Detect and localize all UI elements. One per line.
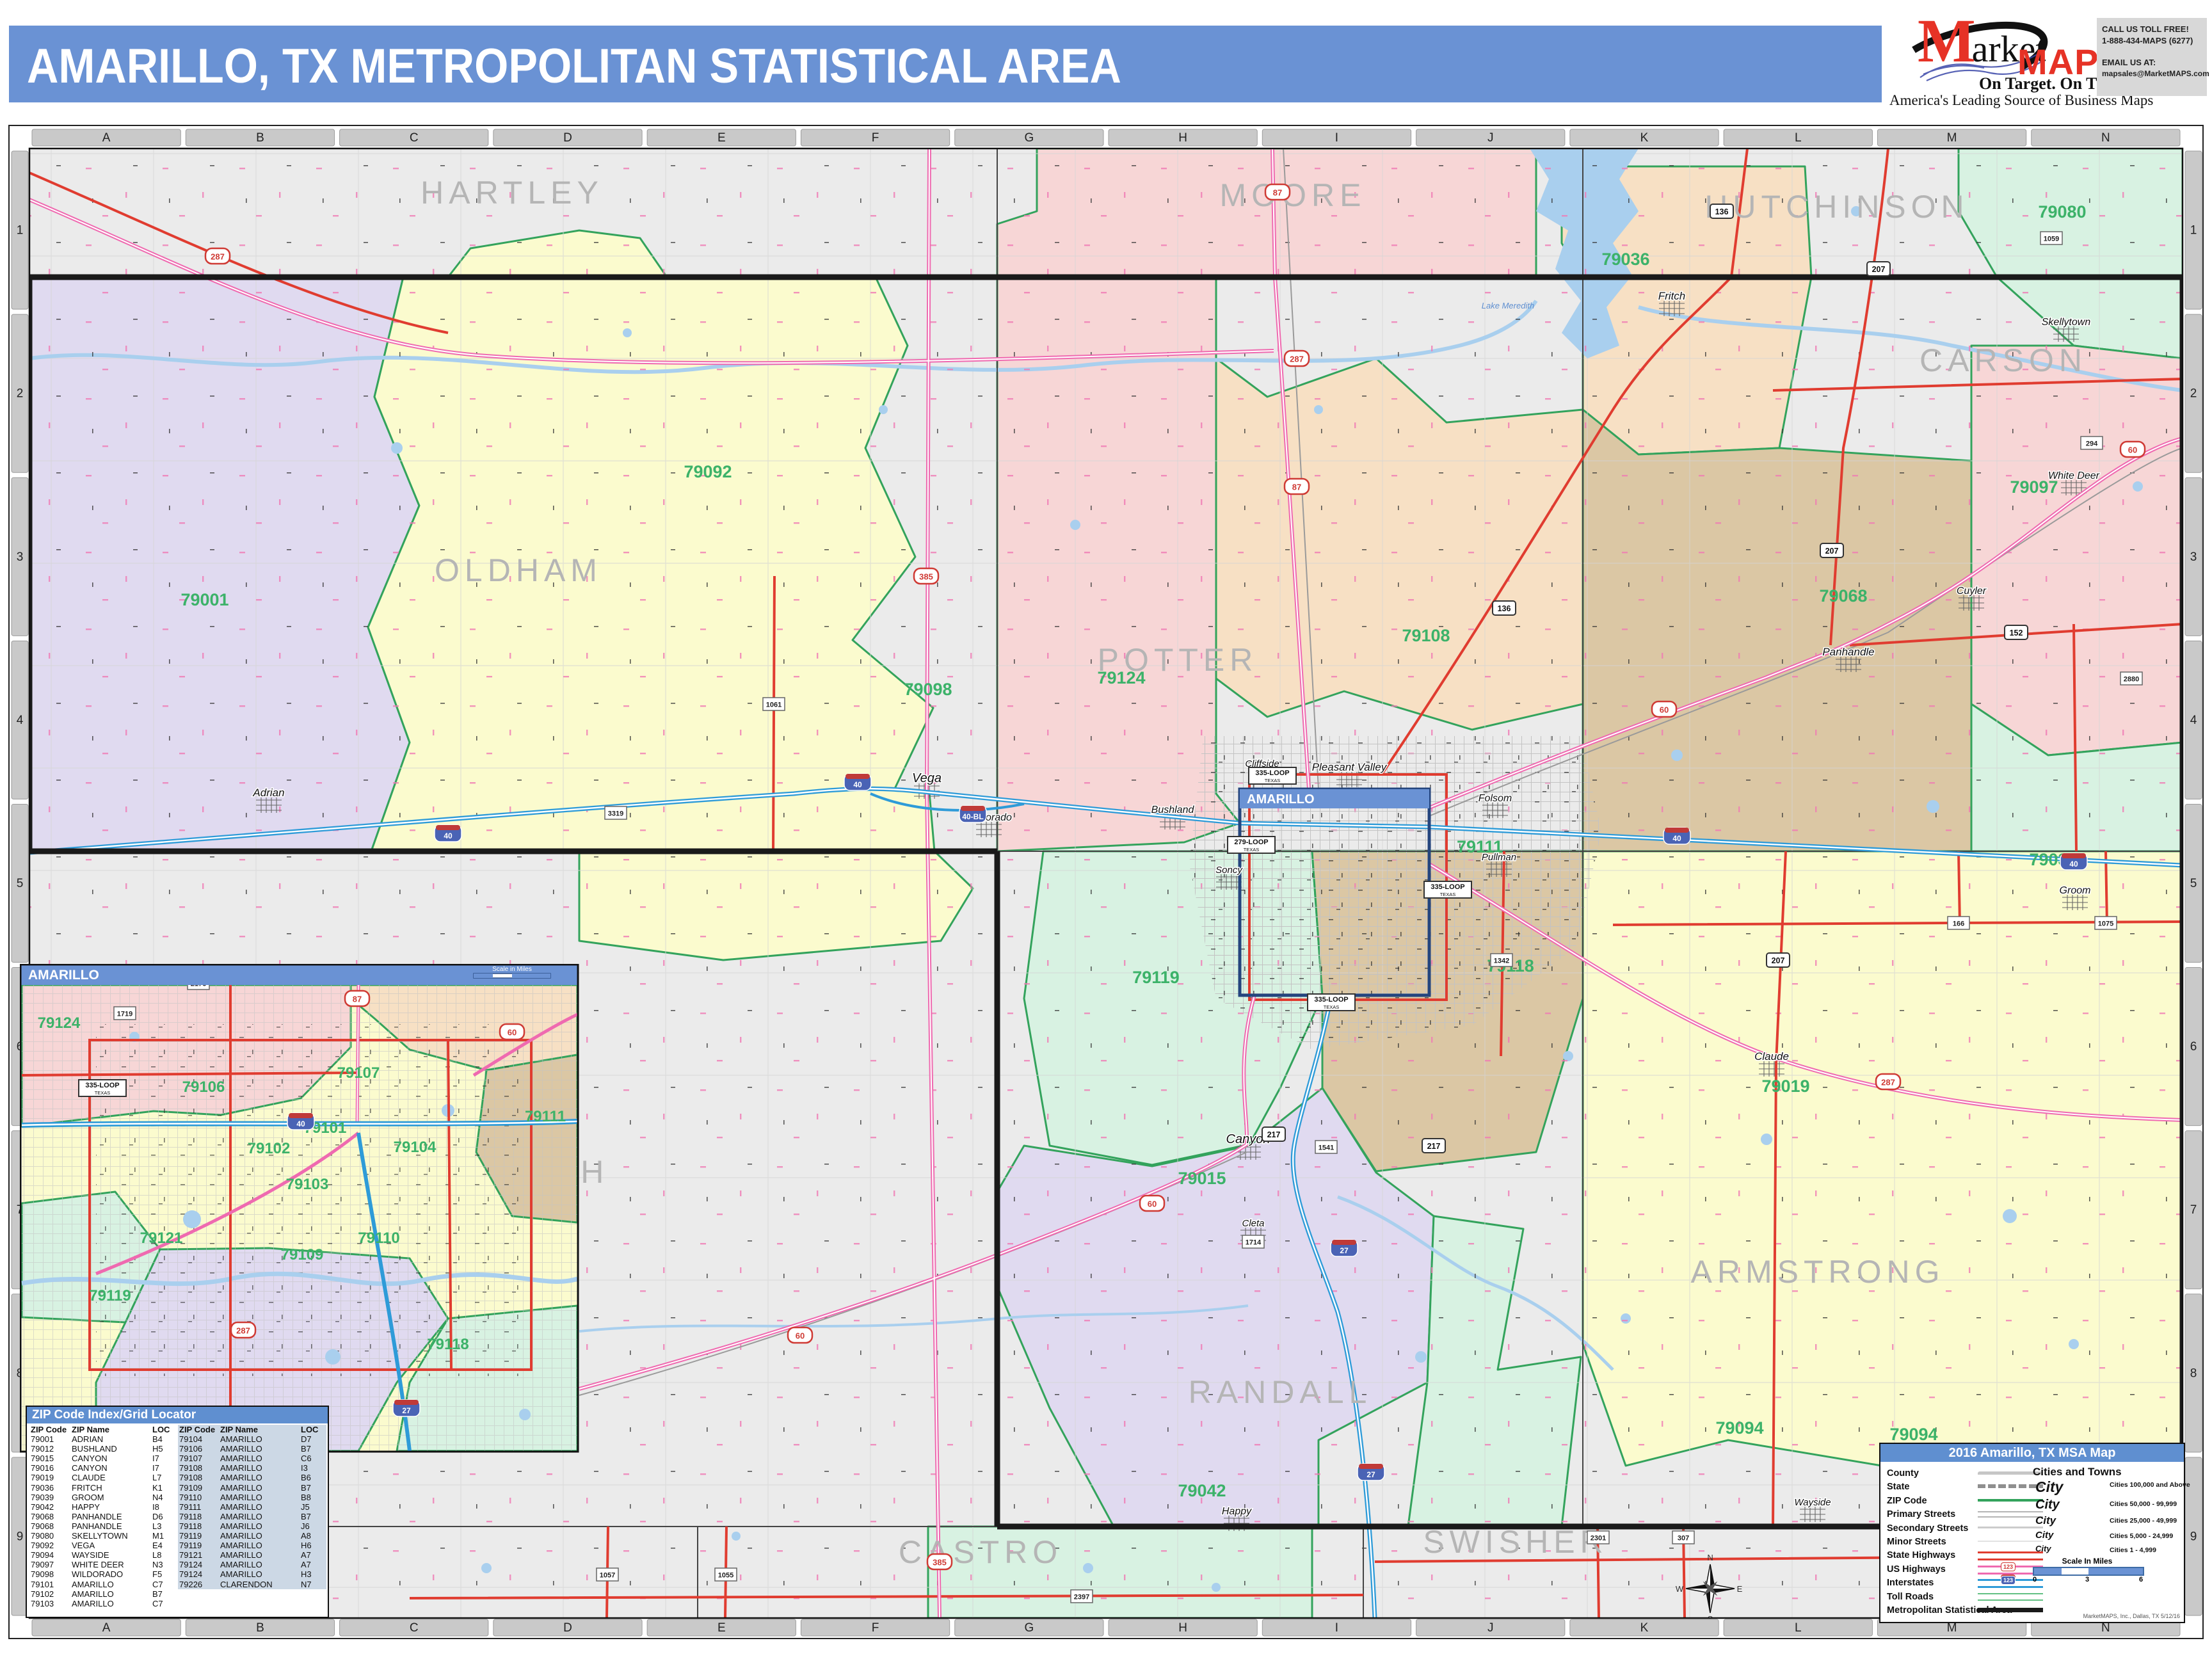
county-label: OLDHAM	[435, 552, 602, 588]
county-label: MOORE	[1220, 177, 1366, 213]
zip-table-row: 79103AMARILLOC7	[29, 1599, 178, 1608]
zip-code-label: 79001	[180, 590, 228, 609]
grid-column-letter: N	[2101, 1621, 2110, 1635]
grid-column-letter: N	[2101, 131, 2110, 145]
svg-text:1541: 1541	[1318, 1144, 1334, 1152]
county-label: CARSON	[1919, 342, 2087, 378]
svg-text:217: 217	[1427, 1142, 1441, 1151]
inset-zip-label: 79103	[286, 1176, 329, 1193]
zip-table-cell: B7	[301, 1444, 324, 1454]
compass-w: W	[1676, 1584, 1684, 1594]
zip-table-cell: AMARILLO	[220, 1493, 301, 1502]
zip-table-cell: 79080	[29, 1531, 72, 1541]
zip-table-cell: ZIP Name	[72, 1425, 152, 1434]
zip-table-cell: CANYON	[72, 1454, 152, 1463]
zip-table-cell: J6	[301, 1521, 324, 1531]
inset-zip-label: 79110	[358, 1230, 399, 1247]
svg-text:TEXAS: TEXAS	[95, 1090, 111, 1096]
legend-item-label: Toll Roads	[1887, 1592, 1934, 1602]
fm-highway-shield: 1061	[763, 698, 785, 710]
hwy-highway-shield: 152	[2005, 625, 2028, 639]
legend-item-ushwy: US Highways123	[1880, 1563, 2028, 1576]
legend-credit: MarketMAPS, Inc., Dallas, TX 5/12/16	[2083, 1613, 2180, 1619]
svg-text:287: 287	[211, 252, 225, 262]
zip-table-cell: WILDORADO	[72, 1569, 152, 1579]
grid-column-letter: B	[256, 1621, 264, 1635]
zip-table-cell: C7	[152, 1580, 175, 1589]
zip-table-cell: L3	[152, 1521, 175, 1531]
hwy-highway-shield: 207	[1867, 262, 1890, 276]
city-class-description: Cities 25,000 - 49,999	[2110, 1517, 2177, 1525]
legend-item-label: US Highways	[1887, 1564, 1946, 1575]
legend: 2016 Amarillo, TX MSA Map CountyStateZIP…	[1879, 1443, 2185, 1623]
zip-table-cell: N7	[301, 1580, 324, 1589]
inset-zip-label: 79121	[140, 1230, 183, 1247]
town-grid	[1235, 1144, 1261, 1160]
zip-table-cell: AMARILLO	[220, 1560, 301, 1569]
town-grid	[1800, 1507, 1825, 1522]
zip-table-cell: 79124	[178, 1569, 220, 1579]
zip-table-row: 79097WHITE DEERN3	[29, 1560, 178, 1569]
county-label: RANDALL	[1189, 1374, 1372, 1410]
town-grid	[1836, 657, 1861, 672]
legend-swatch-toll	[1978, 1593, 2043, 1601]
grid-row-number: 1	[2190, 224, 2197, 237]
lake-label: Lake Meredith	[1482, 301, 1534, 310]
zip-table-cell: LOC	[301, 1425, 324, 1434]
svg-text:335-LOOP: 335-LOOP	[1255, 769, 1289, 777]
i-highway-shield: 40	[2060, 853, 2087, 870]
zip-table-cell: B4	[152, 1434, 175, 1444]
zip-table-row: 79121AMARILLOA7	[178, 1550, 326, 1560]
zip-table-row: 79226CLARENDONN7	[178, 1580, 326, 1589]
zip-table-cell: CLARENDON	[220, 1580, 301, 1589]
zip-table-row: 79039GROOMN4	[29, 1493, 178, 1502]
zip-table-row: 79016CANYONI7	[29, 1463, 178, 1473]
grid-row-number: 9	[2190, 1530, 2197, 1543]
zip-table-cell: AMARILLO	[220, 1512, 301, 1521]
legend-item-msa: Metropolitan Statistical Area	[1880, 1604, 2028, 1617]
interstate-shield-sample: 123	[2001, 1576, 2016, 1585]
zip-table-right-group: ZIP CodeZIP NameLOC79104AMARILLOD779106A…	[178, 1425, 326, 1589]
legend-item-label: State Highways	[1887, 1550, 1955, 1560]
map-poster-page: AMARILLO HARTLEYMOOREHUTCHINSONOLDHAMPOT…	[0, 0, 2212, 1659]
inset-zip-label: 79106	[182, 1078, 225, 1096]
grid-column-letter: L	[1795, 1621, 1802, 1635]
grid-column-letter: F	[872, 131, 879, 145]
grid-row-number: 9	[17, 1530, 24, 1543]
legend-item-label: Interstates	[1887, 1578, 1934, 1588]
grid-row-number: 6	[2190, 1040, 2197, 1054]
legend-item-toll: Toll Roads	[1880, 1591, 2028, 1603]
grid-row-number: 4	[2190, 714, 2197, 727]
zip-table-cell: 79092	[29, 1541, 72, 1550]
town-grid	[2062, 895, 2088, 910]
legend-swatch-state	[1978, 1484, 2043, 1488]
zip-table-cell: B7	[301, 1512, 324, 1521]
county-label: ARMSTRONG	[1691, 1254, 1945, 1290]
loop-highway-shield: 335-LOOPTEXAS	[1308, 994, 1355, 1011]
zip-table-cell: 79104	[178, 1434, 220, 1444]
contact-phone: 1-888-434-MAPS (6277)	[2102, 36, 2193, 45]
zip-table-row: 79098WILDORADOF5	[29, 1569, 178, 1579]
grid-row-number: 2	[17, 387, 24, 401]
zip-table-cell: H6	[301, 1541, 324, 1550]
zip-table-cell: CLAUDE	[72, 1473, 152, 1482]
svg-text:335-LOOP: 335-LOOP	[85, 1082, 119, 1089]
zip-code-label: 79098	[904, 680, 952, 699]
zip-table-cell: 79119	[178, 1541, 220, 1550]
contact-box: CALL US TOLL FREE! 1-888-434-MAPS (6277)…	[2097, 18, 2207, 96]
svg-text:3319: 3319	[608, 810, 623, 818]
zip-code-label: 79068	[1819, 586, 1867, 605]
zip-code-label: 79015	[1178, 1169, 1226, 1188]
town-label: Folsom	[1479, 793, 1512, 804]
us-highway-shield: 60	[1140, 1196, 1164, 1211]
zip-table-cell: ZIP Name	[220, 1425, 301, 1434]
svg-text:207: 207	[1872, 265, 1886, 274]
zip-table-cell: AMARILLO	[220, 1463, 301, 1473]
us-highway-shield: 87	[1265, 184, 1290, 200]
us-highway-shield: 385	[927, 1554, 952, 1569]
zip-table-cell: B7	[301, 1483, 324, 1493]
zip-table-row: 79068PANHANDLED6	[29, 1512, 178, 1521]
svg-text:287: 287	[1881, 1078, 1895, 1087]
svg-text:1075: 1075	[2098, 920, 2113, 928]
town-label: Bushland	[1151, 805, 1195, 815]
zip-table-cell: HAPPY	[72, 1502, 152, 1512]
zip-table-cell: A7	[301, 1550, 324, 1560]
zip-table-row: 79124AMARILLOH3	[178, 1569, 326, 1579]
town-label: White Deer	[2048, 470, 2100, 481]
town-label: Wayside	[1794, 1497, 1831, 1508]
town-grid	[1482, 803, 1508, 818]
fm-highway-shield: 1342	[1491, 954, 1512, 966]
grid-row-number: 4	[17, 714, 24, 727]
zip-table-cell: 79226	[178, 1580, 220, 1589]
city-box-title: AMARILLO	[1247, 792, 1315, 806]
zip-table-cell: VEGA	[72, 1541, 152, 1550]
fm-highway-shield: 307	[1672, 1531, 1694, 1544]
town-grid	[1759, 1061, 1784, 1077]
loop-highway-shield: 335-LOOPTEXAS	[79, 1080, 126, 1096]
zip-table-cell: D6	[152, 1512, 175, 1521]
inset-zip-label: 79102	[248, 1140, 291, 1157]
legend-scale-title: Scale In Miles	[2033, 1557, 2142, 1566]
zip-table-cell: AMARILLO	[220, 1454, 301, 1463]
zip-code-label: 79092	[684, 462, 732, 481]
svg-text:60: 60	[1660, 705, 1669, 715]
legend-item-county: County	[1880, 1467, 2028, 1480]
zip-table-cell: 79124	[178, 1560, 220, 1569]
town-label: Pleasant Valley	[1312, 761, 1388, 773]
svg-text:1057: 1057	[600, 1572, 615, 1580]
grid-column-letter: E	[717, 131, 726, 145]
zip-table-row: 79104AMARILLOD7	[178, 1434, 326, 1444]
zip-table-cell: 79106	[178, 1444, 220, 1454]
zip-table-cell: H3	[301, 1569, 324, 1579]
ushwy-shield-sample: 123	[2001, 1562, 2016, 1571]
loop-highway-shield: 335-LOOPTEXAS	[1249, 767, 1296, 784]
zip-table-row: 79107AMARILLOC6	[178, 1454, 326, 1463]
us-highway-shield: 60	[2120, 442, 2145, 457]
zip-table-cell: WHITE DEER	[72, 1560, 152, 1569]
zip-table-cell: 79108	[178, 1463, 220, 1473]
zip-table-cell: M1	[152, 1531, 175, 1541]
zip-table-cell: I7	[152, 1463, 175, 1473]
fm-highway-shield: 294	[2081, 437, 2103, 449]
svg-text:60: 60	[508, 1028, 517, 1038]
page-title: AMARILLO, TX METROPOLITAN STATISTICAL AR…	[27, 38, 1121, 94]
inset-title: AMARILLO	[28, 968, 99, 982]
zip-table-cell: 79107	[178, 1454, 220, 1463]
svg-text:27: 27	[1366, 1470, 1375, 1479]
zip-table-cell: 79097	[29, 1560, 72, 1569]
svg-text:136: 136	[1498, 604, 1511, 613]
grid-column-letter: G	[1024, 1621, 1034, 1635]
grid-column-letter: H	[1178, 131, 1187, 145]
hwy-highway-shield: 136	[1493, 601, 1516, 615]
grid-column-letter: L	[1795, 131, 1802, 145]
zip-table-cell: AMARILLO	[220, 1444, 301, 1454]
zip-table-row: 79101AMARILLOC7	[29, 1580, 178, 1589]
zip-table-cell: J5	[301, 1502, 324, 1512]
town-label: Panhandle	[1822, 646, 1874, 658]
zip-table-cell: 79068	[29, 1512, 72, 1521]
legend-item-interstate: Interstates123	[1880, 1576, 2028, 1589]
zip-table-cell: 79118	[178, 1521, 220, 1531]
us-highway-shield: 385	[914, 568, 938, 584]
grid-column-letter: M	[1947, 131, 1957, 145]
zip-table-row: 79119AMARILLOH6	[178, 1541, 326, 1550]
zip-table-cell: C7	[152, 1599, 175, 1608]
fm-highway-shield: 1059	[2040, 232, 2062, 244]
zip-table-cell: N4	[152, 1493, 175, 1502]
zip-code-label: 79036	[1601, 250, 1649, 269]
grid-column-letter: C	[410, 1621, 419, 1635]
town-label: Adrian	[252, 787, 284, 799]
us-highway-shield: 87	[345, 991, 369, 1006]
legend-item-label: State	[1887, 1482, 1909, 1492]
svg-text:87: 87	[1273, 188, 1282, 198]
logo-m-initial: M	[1918, 6, 1972, 75]
zip-table-cell: CANYON	[72, 1463, 152, 1473]
i-highway-shield: 40	[844, 774, 871, 790]
i-highway-shield: 40-BL	[959, 806, 986, 822]
grid-row-number: 5	[2190, 877, 2197, 890]
county-label: SWISHER	[1423, 1524, 1608, 1560]
grid-row-number: 8	[2190, 1366, 2197, 1380]
grid-column-letter: K	[1640, 131, 1649, 145]
grid-row-number: 5	[17, 877, 24, 890]
zip-table-cell: LOC	[152, 1425, 175, 1434]
grid-column-letter: J	[1487, 1621, 1494, 1635]
grid-column-letter: F	[872, 1621, 879, 1635]
svg-text:60: 60	[2128, 445, 2137, 455]
loop-highway-shield: 335-LOOPTEXAS	[1424, 881, 1471, 898]
zip-table-header-row: ZIP CodeZIP NameLOC	[29, 1425, 178, 1434]
zip-table-cell: AMARILLO	[220, 1521, 301, 1531]
zip-code-index-table: ZIP Code Index/Grid Locator ZIP CodeZIP …	[26, 1406, 329, 1618]
svg-text:152: 152	[2010, 629, 2023, 637]
zip-table-cell: SKELLYTOWN	[72, 1531, 152, 1541]
marketmaps-logo: Market MAPS On Target. On Time. America'…	[1882, 0, 2212, 110]
zip-code-label: 79094	[1889, 1425, 1937, 1444]
zip-table-cell: 79016	[29, 1463, 72, 1473]
zip-table-cell: B6	[301, 1473, 324, 1482]
zip-table-left-group: ZIP CodeZIP NameLOC79001ADRIANB479012BUS…	[29, 1425, 178, 1608]
scale-tick: 3	[2085, 1576, 2089, 1583]
svg-text:279-LOOP: 279-LOOP	[1234, 838, 1268, 846]
zip-table-cell: 79111	[178, 1502, 220, 1512]
i-highway-shield: 40	[287, 1113, 314, 1130]
zip-code-label: 79108	[1402, 626, 1450, 645]
zip-table-cell: GROOM	[72, 1493, 152, 1502]
zip-table-row: 79109AMARILLOB7	[178, 1483, 326, 1493]
legend-scale-bar	[2033, 1567, 2144, 1576]
hwy-highway-shield: 217	[1262, 1127, 1285, 1141]
zip-table-cell: 79068	[29, 1521, 72, 1531]
svg-text:TEXAS: TEXAS	[1440, 892, 1456, 897]
zip-table-row: 79036FRITCHK1	[29, 1483, 178, 1493]
legend-item-primary: Primary Streets	[1880, 1508, 2028, 1521]
zip-table-cell: AMARILLO	[72, 1580, 152, 1589]
svg-text:TEXAS: TEXAS	[1244, 847, 1260, 853]
svg-text:287: 287	[1290, 355, 1304, 364]
contact-email: mapsales@MarketMAPS.com	[2102, 69, 2209, 78]
city-sample-text: City	[2035, 1479, 2063, 1496]
zip-table-row: 79118AMARILLOB7	[178, 1512, 326, 1521]
inset-zip-label: 79104	[394, 1139, 437, 1156]
zip-table-row: 79102AMARILLOB7	[29, 1589, 178, 1599]
svg-text:87: 87	[1292, 483, 1301, 492]
svg-text:385: 385	[919, 572, 933, 582]
svg-text:2397: 2397	[1074, 1594, 1089, 1601]
svg-text:207: 207	[1825, 547, 1839, 556]
zip-table-cell: 79042	[29, 1502, 72, 1512]
zip-code-label: 79094	[1715, 1418, 1763, 1438]
svg-text:287: 287	[236, 1326, 250, 1336]
county-label: HUTCHINSON	[1704, 189, 1969, 225]
legend-title: 2016 Amarillo, TX MSA Map	[1880, 1444, 2184, 1462]
grid-column-letter: D	[563, 1621, 572, 1635]
scale-tick: 6	[2139, 1576, 2143, 1583]
zip-code-label: 79019	[1761, 1077, 1809, 1096]
zip-table-cell: PANHANDLE	[72, 1521, 152, 1531]
town-grid	[1216, 874, 1242, 890]
town-label: Happy	[1222, 1506, 1252, 1517]
zip-table-cell: 79102	[29, 1589, 72, 1599]
zip-table-cell: 79094	[29, 1550, 72, 1560]
legend-item-statehwy: State Highways	[1880, 1549, 2028, 1562]
county-label: HARTLEY	[421, 175, 604, 211]
svg-text:294: 294	[2086, 440, 2098, 448]
zip-table-row: 79108AMARILLOB6	[178, 1473, 326, 1482]
zip-table-cell: B7	[152, 1589, 175, 1599]
loop-highway-shield: 279-LOOPTEXAS	[1228, 837, 1275, 853]
grid-column-letter: I	[1335, 131, 1338, 145]
svg-text:27: 27	[402, 1406, 411, 1415]
zip-table-cell: AMARILLO	[72, 1589, 152, 1599]
svg-text:40-BL: 40-BL	[962, 812, 983, 821]
hwy-highway-shield: 217	[1422, 1139, 1445, 1153]
grid-row-number: 7	[2190, 1203, 2197, 1217]
city-class-description: Cities 100,000 and Above	[2110, 1481, 2190, 1489]
zip-table-cell: H5	[152, 1444, 175, 1454]
city-sample-text: City	[2035, 1544, 2051, 1553]
i-highway-shield: 40	[435, 825, 461, 842]
zip-table-cell: AMARILLO	[72, 1599, 152, 1608]
us-highway-shield: 60	[788, 1327, 812, 1343]
legend-item-label: Minor Streets	[1887, 1537, 1946, 1547]
zip-table-cell: AMARILLO	[220, 1531, 301, 1541]
svg-text:40: 40	[296, 1119, 305, 1128]
inset-zip-label: 79119	[89, 1287, 131, 1304]
zip-table-cell: I8	[152, 1502, 175, 1512]
svg-text:40: 40	[1672, 834, 1681, 843]
town-label: Soncy	[1215, 865, 1243, 876]
inset-zip-label: 79124	[38, 1014, 81, 1032]
legend-item-label: Secondary Streets	[1887, 1523, 1968, 1534]
fm-highway-shield: 166	[1948, 917, 1969, 929]
zip-table-cell: F5	[152, 1569, 175, 1579]
fm-highway-shield: 1055	[715, 1568, 737, 1581]
hwy-highway-shield: 136	[1710, 204, 1733, 218]
town-label: Pullman	[1482, 852, 1516, 863]
svg-text:217: 217	[1267, 1130, 1281, 1139]
town-grid	[256, 797, 282, 813]
legend-swatch-primary	[1978, 1511, 2043, 1518]
zip-table-cell: 79036	[29, 1483, 72, 1493]
zip-table-row: 79068PANHANDLEL3	[29, 1521, 178, 1531]
grid-column-letter: E	[717, 1621, 726, 1635]
zip-table-cell: D7	[301, 1434, 324, 1444]
zip-table-cell: L8	[152, 1550, 175, 1560]
zip-table-row: 79001ADRIANB4	[29, 1434, 178, 1444]
amarillo-inset-map: 7910879124791077910679101791027910479103…	[20, 964, 579, 1453]
town-label: Cuyler	[1957, 586, 1987, 597]
i-highway-shield: 40	[1663, 828, 1690, 844]
zip-table-cell: AMARILLO	[220, 1569, 301, 1579]
zip-table-row: 79012BUSHLANDH5	[29, 1444, 178, 1454]
town-grid	[1959, 595, 1984, 611]
grid-column-letter: H	[1178, 1621, 1187, 1635]
zip-table-cell: 79001	[29, 1434, 72, 1444]
zip-table-cell: 79109	[178, 1483, 220, 1493]
zip-table-cell: K1	[152, 1483, 175, 1493]
us-highway-shield: 287	[1876, 1074, 1900, 1089]
zip-table-cell: 79039	[29, 1493, 72, 1502]
zip-table-cell: 79101	[29, 1580, 72, 1589]
grid-row-number: 3	[2190, 550, 2197, 564]
city-sample-text: City	[2035, 1498, 2060, 1512]
svg-text:27: 27	[1340, 1246, 1349, 1255]
zip-table-cell: 79012	[29, 1444, 72, 1454]
zip-code-label: 79042	[1178, 1481, 1226, 1500]
us-highway-shield: 87	[1285, 479, 1309, 494]
svg-text:166: 166	[1953, 920, 1964, 928]
zip-table-row: 79110AMARILLOB8	[178, 1493, 326, 1502]
legend-item-zip: ZIP Code	[1880, 1495, 2028, 1507]
svg-text:385: 385	[933, 1558, 947, 1567]
svg-text:40: 40	[2069, 860, 2078, 869]
scale-tick: 0	[2033, 1576, 2037, 1583]
county-label: CASTRO	[899, 1534, 1062, 1570]
svg-text:40: 40	[444, 831, 453, 840]
zip-code-label: 79119	[1132, 968, 1180, 987]
inset-zip-label: 79107	[337, 1064, 380, 1082]
grid-column-letter: I	[1335, 1621, 1338, 1635]
